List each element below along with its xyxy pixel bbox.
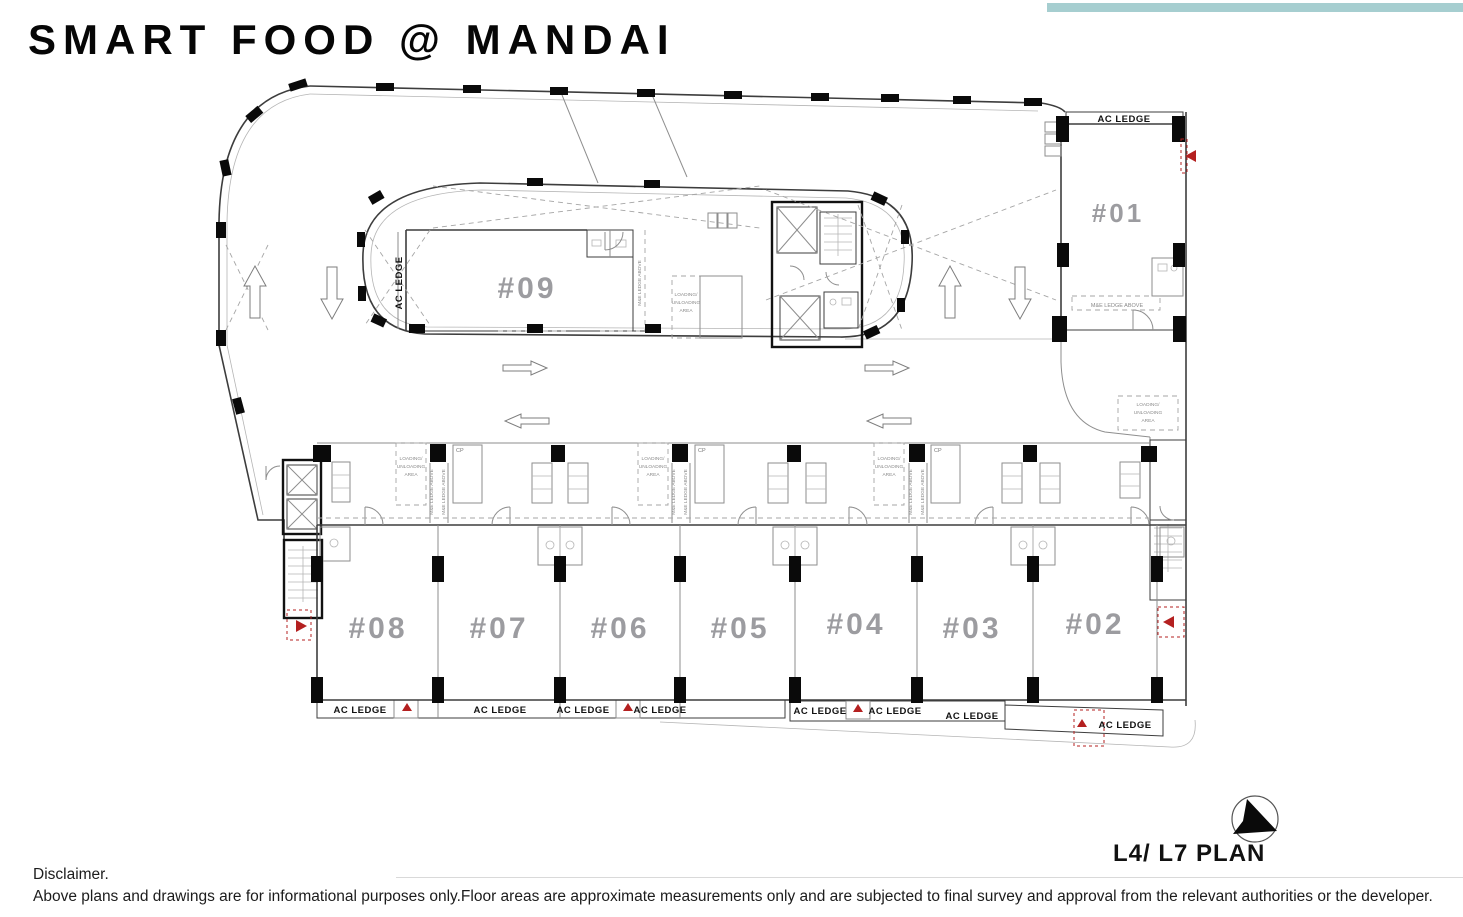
loading-area-label: LOADING/ — [1137, 402, 1161, 408]
me-ledge-label: M&E LEDGE ABOVE — [920, 469, 926, 515]
me-ledge-label: M&E LEDGE ABOVE — [683, 469, 689, 515]
svg-text:UNLOADING: UNLOADING — [639, 464, 668, 470]
disclaimer-text: Above plans and drawings are for informa… — [33, 888, 1433, 906]
cp-label: CP — [698, 448, 706, 454]
entry-marker-ledge-2 — [623, 703, 633, 711]
core-left — [266, 460, 350, 618]
unit-row — [317, 507, 1186, 700]
entry-marker-unit08 — [296, 620, 307, 632]
me-ledge-label: M&E LEDGE ABOVE — [671, 469, 677, 515]
plan-level-label: L4/ L7 PLAN — [1113, 840, 1265, 868]
svg-text:AREA: AREA — [646, 472, 660, 478]
svg-text:AREA: AREA — [404, 472, 418, 478]
me-ledge-label: M&E LEDGE ABOVE — [1091, 303, 1144, 309]
page: SMART FOOD @ MANDAI — [0, 0, 1463, 917]
ac-ledge-label: AC LEDGE — [793, 706, 846, 717]
svg-text:AREA: AREA — [882, 472, 896, 478]
ac-ledge-label-vertical: AC LEDGE — [394, 256, 405, 309]
loading-area-label: LOADING/ — [878, 456, 902, 462]
entry-marker-ledge-1 — [402, 703, 412, 711]
svg-text:UNLOADING: UNLOADING — [672, 300, 701, 306]
ac-ledge-label: AC LEDGE — [556, 705, 609, 716]
footer-divider — [396, 877, 1463, 878]
arrow-east-2 — [865, 361, 909, 375]
north-arrow-icon — [1228, 792, 1282, 846]
unit-label-07: #07 — [469, 612, 528, 645]
cp-label: CP — [456, 448, 464, 454]
svg-text:UNLOADING: UNLOADING — [1134, 410, 1163, 416]
me-ledge-label: M&E LEDGE ABOVE — [908, 469, 914, 515]
ac-ledge-label: AC LEDGE — [333, 705, 386, 716]
unit-label-09: #09 — [497, 272, 556, 305]
me-ledge-label: M&E LEDGE ABOVE — [637, 260, 643, 306]
unit-label-02: #02 — [1065, 608, 1124, 641]
entry-marker-ledge-3 — [853, 704, 863, 712]
loading-area-label: LOADING/ — [642, 456, 666, 462]
unit-label-06: #06 — [590, 612, 649, 645]
ac-ledge-label: AC LEDGE — [633, 705, 686, 716]
unit-label-01: #01 — [1092, 198, 1144, 228]
arrow-west-1 — [505, 414, 549, 428]
unit-label-04: #04 — [826, 608, 885, 641]
arrow-up-left — [244, 266, 266, 318]
entry-marker-ledge-4 — [1077, 719, 1087, 727]
core-central — [772, 202, 862, 347]
arrow-down-left — [321, 267, 343, 319]
unit-label-08: #08 — [348, 612, 407, 645]
ac-ledge-label: AC LEDGE — [945, 711, 998, 722]
me-ledge-label: M&E LEDGE ABOVE — [429, 469, 435, 515]
cp-label: CP — [934, 448, 942, 454]
ac-ledge-label: AC LEDGE — [1097, 114, 1150, 125]
outer-walls — [219, 86, 1195, 747]
unit-label-03: #03 — [942, 612, 1001, 645]
arrow-up-right — [939, 266, 961, 318]
loading-area-label: LOADING/ — [400, 456, 424, 462]
svg-text:UNLOADING: UNLOADING — [875, 464, 904, 470]
arrow-down-right — [1009, 267, 1031, 319]
ac-ledge-label: AC LEDGE — [868, 706, 921, 717]
disclaimer-heading: Disclaimer. — [33, 866, 109, 884]
arrow-west-2 — [867, 414, 911, 428]
floor-plan: #01 #09 #08 #07 #06 #05 #04 #03 #02 AC L… — [0, 0, 1463, 917]
me-ledge-label: M&E LEDGE ABOVE — [441, 469, 447, 515]
entry-marker-unit02 — [1163, 616, 1174, 628]
svg-text:UNLOADING: UNLOADING — [397, 464, 426, 470]
ac-ledge-label: AC LEDGE — [473, 705, 526, 716]
loading-area-label: LOADING/ — [675, 292, 699, 298]
svg-text:AREA: AREA — [679, 308, 693, 314]
columns — [216, 78, 1186, 703]
svg-text:AREA: AREA — [1141, 418, 1155, 424]
plan-text-labels: #01 #09 #08 #07 #06 #05 #04 #03 #02 AC L… — [333, 114, 1162, 731]
unit-label-05: #05 — [710, 612, 769, 645]
ac-ledge-label: AC LEDGE — [1098, 720, 1151, 731]
arrow-east-1 — [503, 361, 547, 375]
